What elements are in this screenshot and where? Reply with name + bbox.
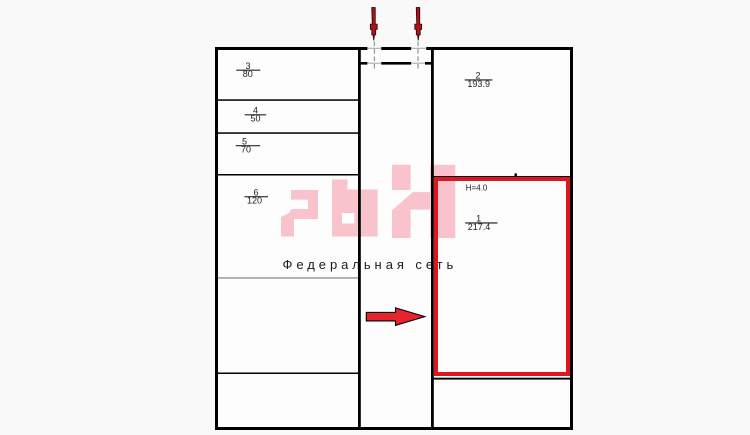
svg-text:120: 120 — [247, 195, 262, 205]
svg-text:217.4: 217.4 — [468, 222, 491, 232]
svg-text:193.9: 193.9 — [467, 79, 490, 89]
svg-text:70: 70 — [241, 144, 251, 154]
svg-text:H=4.0: H=4.0 — [466, 184, 488, 193]
svg-text:80: 80 — [243, 69, 253, 79]
svg-text:50: 50 — [250, 113, 260, 123]
